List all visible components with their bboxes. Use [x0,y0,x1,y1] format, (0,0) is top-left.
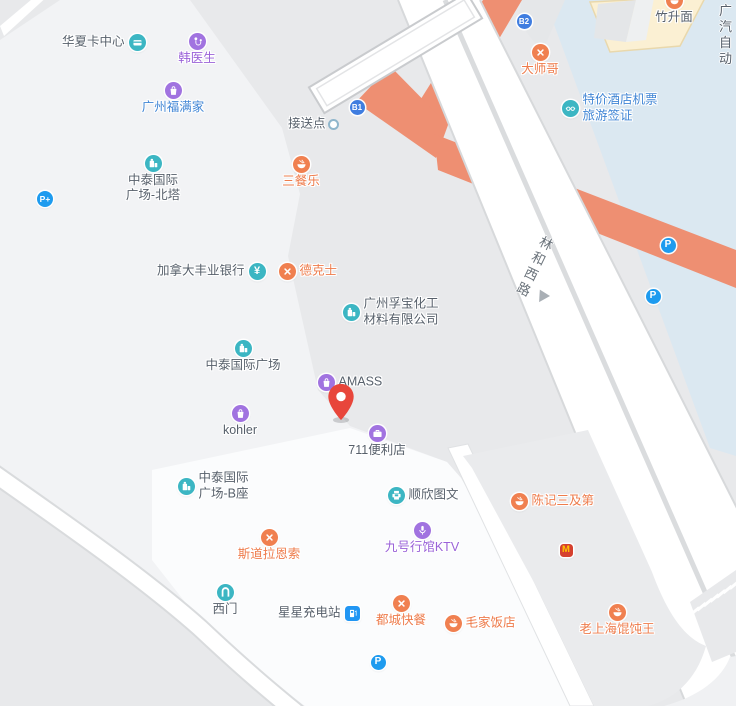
poi-zhongtai-tower-b-glyph [180,480,193,493]
poi-west-gate-icon[interactable] [217,584,234,601]
poi-doctor-han-icon[interactable] [189,33,206,50]
poi-parking-south-glyph: P [375,657,382,667]
poi-sancanle-label[interactable]: 三餐乐 [282,174,320,190]
poi-dashige-icon[interactable] [532,44,549,61]
poi-dicos-icon[interactable] [279,263,296,280]
poi-doctor-han-glyph [191,35,204,48]
poi-maojia-restaurant-glyph [447,617,460,630]
poi-ducheng-fastfood-icon[interactable] [393,595,410,612]
poi-kohler-glyph [234,407,247,420]
poi-zhongtai-plaza-icon[interactable] [235,340,252,357]
poi-kohler-icon[interactable] [232,405,249,422]
poi-shunxin-print-icon[interactable] [388,487,405,504]
poi-parking-mid-icon[interactable]: P [646,289,661,304]
poi-stora-enso-label[interactable]: 斯道拉恩索 [238,547,301,563]
poi-fubao-chemical-glyph [345,306,358,319]
corner-poi-line2: 自动 [719,35,736,67]
poi-shunxin-print-glyph [390,489,403,502]
poi-dashige-label[interactable]: 大师哥 [521,62,559,78]
poi-zhongtai-north-tower-label[interactable]: 中泰国际广场-北塔 [126,173,180,204]
poi-zhongtai-tower-b-label[interactable]: 中泰国际广场-B座 [199,471,249,502]
poi-huaxia-card-center-icon[interactable] [129,34,146,51]
poi-star-charging-glyph [347,608,358,619]
poi-shunxin-print-label[interactable]: 顺欣图文 [409,487,459,503]
corner-poi-line1: 广汽 [719,3,736,35]
poi-dicos-glyph [281,265,294,278]
poi-guangzhou-fumanjia-glyph [167,84,180,97]
poi-zhongtai-north-tower-glyph [147,157,160,170]
poi-zhongtai-plaza-glyph [237,342,250,355]
poi-park-and-ride-icon[interactable]: P+ [37,191,53,207]
poi-huaxia-card-center-label[interactable]: 华夏卡中心 [62,34,125,50]
poi-scotiabank-canada-label[interactable]: 加拿大丰业银行 [157,263,245,279]
poi-maojia-restaurant-label[interactable]: 毛家饭店 [466,615,516,631]
poi-old-shanghai-wonton-glyph [611,606,624,619]
poi-zhongtai-tower-b-icon[interactable] [178,478,195,495]
poi-zhushengmian-icon[interactable] [666,0,683,9]
poi-mcdonalds-glyph: M [562,545,570,555]
poi-711-store-label[interactable]: 711便利店 [348,443,405,459]
poi-ducheng-fastfood-label[interactable]: 都城快餐 [376,613,426,629]
poi-guangzhou-fumanjia-icon[interactable] [165,82,182,99]
poi-huaxia-card-center-glyph [131,36,144,49]
poi-kohler-label[interactable]: kohler [223,423,257,439]
poi-sancanle-glyph [295,158,308,171]
poi-ktv-no9-icon[interactable] [414,522,431,539]
poi-sancanle-icon[interactable] [293,156,310,173]
poi-guangzhou-fumanjia-label[interactable]: 广州福满家 [142,100,205,116]
poi-ducheng-fastfood-glyph [395,597,408,610]
map-canvas[interactable]: 林和西路 广汽 自动 华夏卡中心韩医生广州福满家中泰国际广场-北塔P+三餐乐¥加… [0,0,736,706]
subway-exit-b1-badge[interactable]: B1 [350,100,365,115]
poi-scotiabank-canada-icon[interactable]: ¥ [249,263,266,280]
poi-star-charging-label[interactable]: 星星充电站 [278,605,341,621]
poi-hotel-ticket-visa-label[interactable]: 特价酒店机票旅游签证 [583,93,658,124]
poi-pickup-point-icon[interactable] [330,121,337,128]
poi-west-gate-glyph [219,586,232,599]
corner-poi-label: 广汽 自动 [719,3,736,67]
poi-chenji-sanjidi-glyph [513,495,526,508]
poi-fubao-chemical-icon[interactable] [343,304,360,321]
poi-parking-mid-glyph: P [650,291,657,301]
poi-711-store-glyph [371,427,384,440]
poi-zhushengmian-label[interactable]: 竹升面 [655,10,693,26]
poi-stora-enso-glyph [263,531,276,544]
poi-scotiabank-canada-glyph: ¥ [254,266,260,277]
poi-park-and-ride-glyph: P+ [40,195,51,204]
poi-parking-south-icon[interactable]: P [371,655,386,670]
subway-exit-b2-badge[interactable]: B2 [517,14,532,29]
poi-pickup-point-label[interactable]: 接送点 [288,116,326,132]
poi-hotel-ticket-visa-glyph [564,102,577,115]
poi-stora-enso-icon[interactable] [261,529,278,546]
poi-parking-north-icon[interactable]: P [661,238,676,253]
poi-old-shanghai-wonton-label[interactable]: 老上海馄饨王 [579,622,654,638]
poi-west-gate-label[interactable]: 西门 [212,602,237,618]
poi-doctor-han-label[interactable]: 韩医生 [178,51,216,67]
poi-dashige-glyph [534,46,547,59]
poi-mcdonalds-icon[interactable]: M [560,544,573,557]
poi-layer: 华夏卡中心韩医生广州福满家中泰国际广场-北塔P+三餐乐¥加拿大丰业银行德克士接送… [0,0,736,706]
poi-711-store-icon[interactable] [369,425,386,442]
poi-hotel-ticket-visa-icon[interactable] [562,100,579,117]
poi-fubao-chemical-label[interactable]: 广州孚宝化工材料有限公司 [364,297,439,328]
poi-parking-north-glyph: P [665,240,672,250]
poi-chenji-sanjidi-label[interactable]: 陈记三及第 [532,493,595,509]
poi-maojia-restaurant-icon[interactable] [445,615,462,632]
poi-ktv-no9-glyph [416,524,429,537]
poi-chenji-sanjidi-icon[interactable] [511,493,528,510]
poi-old-shanghai-wonton-icon[interactable] [609,604,626,621]
poi-dicos-label[interactable]: 德克士 [300,263,338,279]
poi-ktv-no9-label[interactable]: 九号行馆KTV [385,540,459,556]
poi-zhongtai-plaza-label[interactable]: 中泰国际广场 [205,358,280,374]
poi-zhongtai-north-tower-icon[interactable] [145,155,162,172]
poi-zhushengmian-glyph [668,0,681,7]
poi-star-charging-icon[interactable] [345,606,360,621]
